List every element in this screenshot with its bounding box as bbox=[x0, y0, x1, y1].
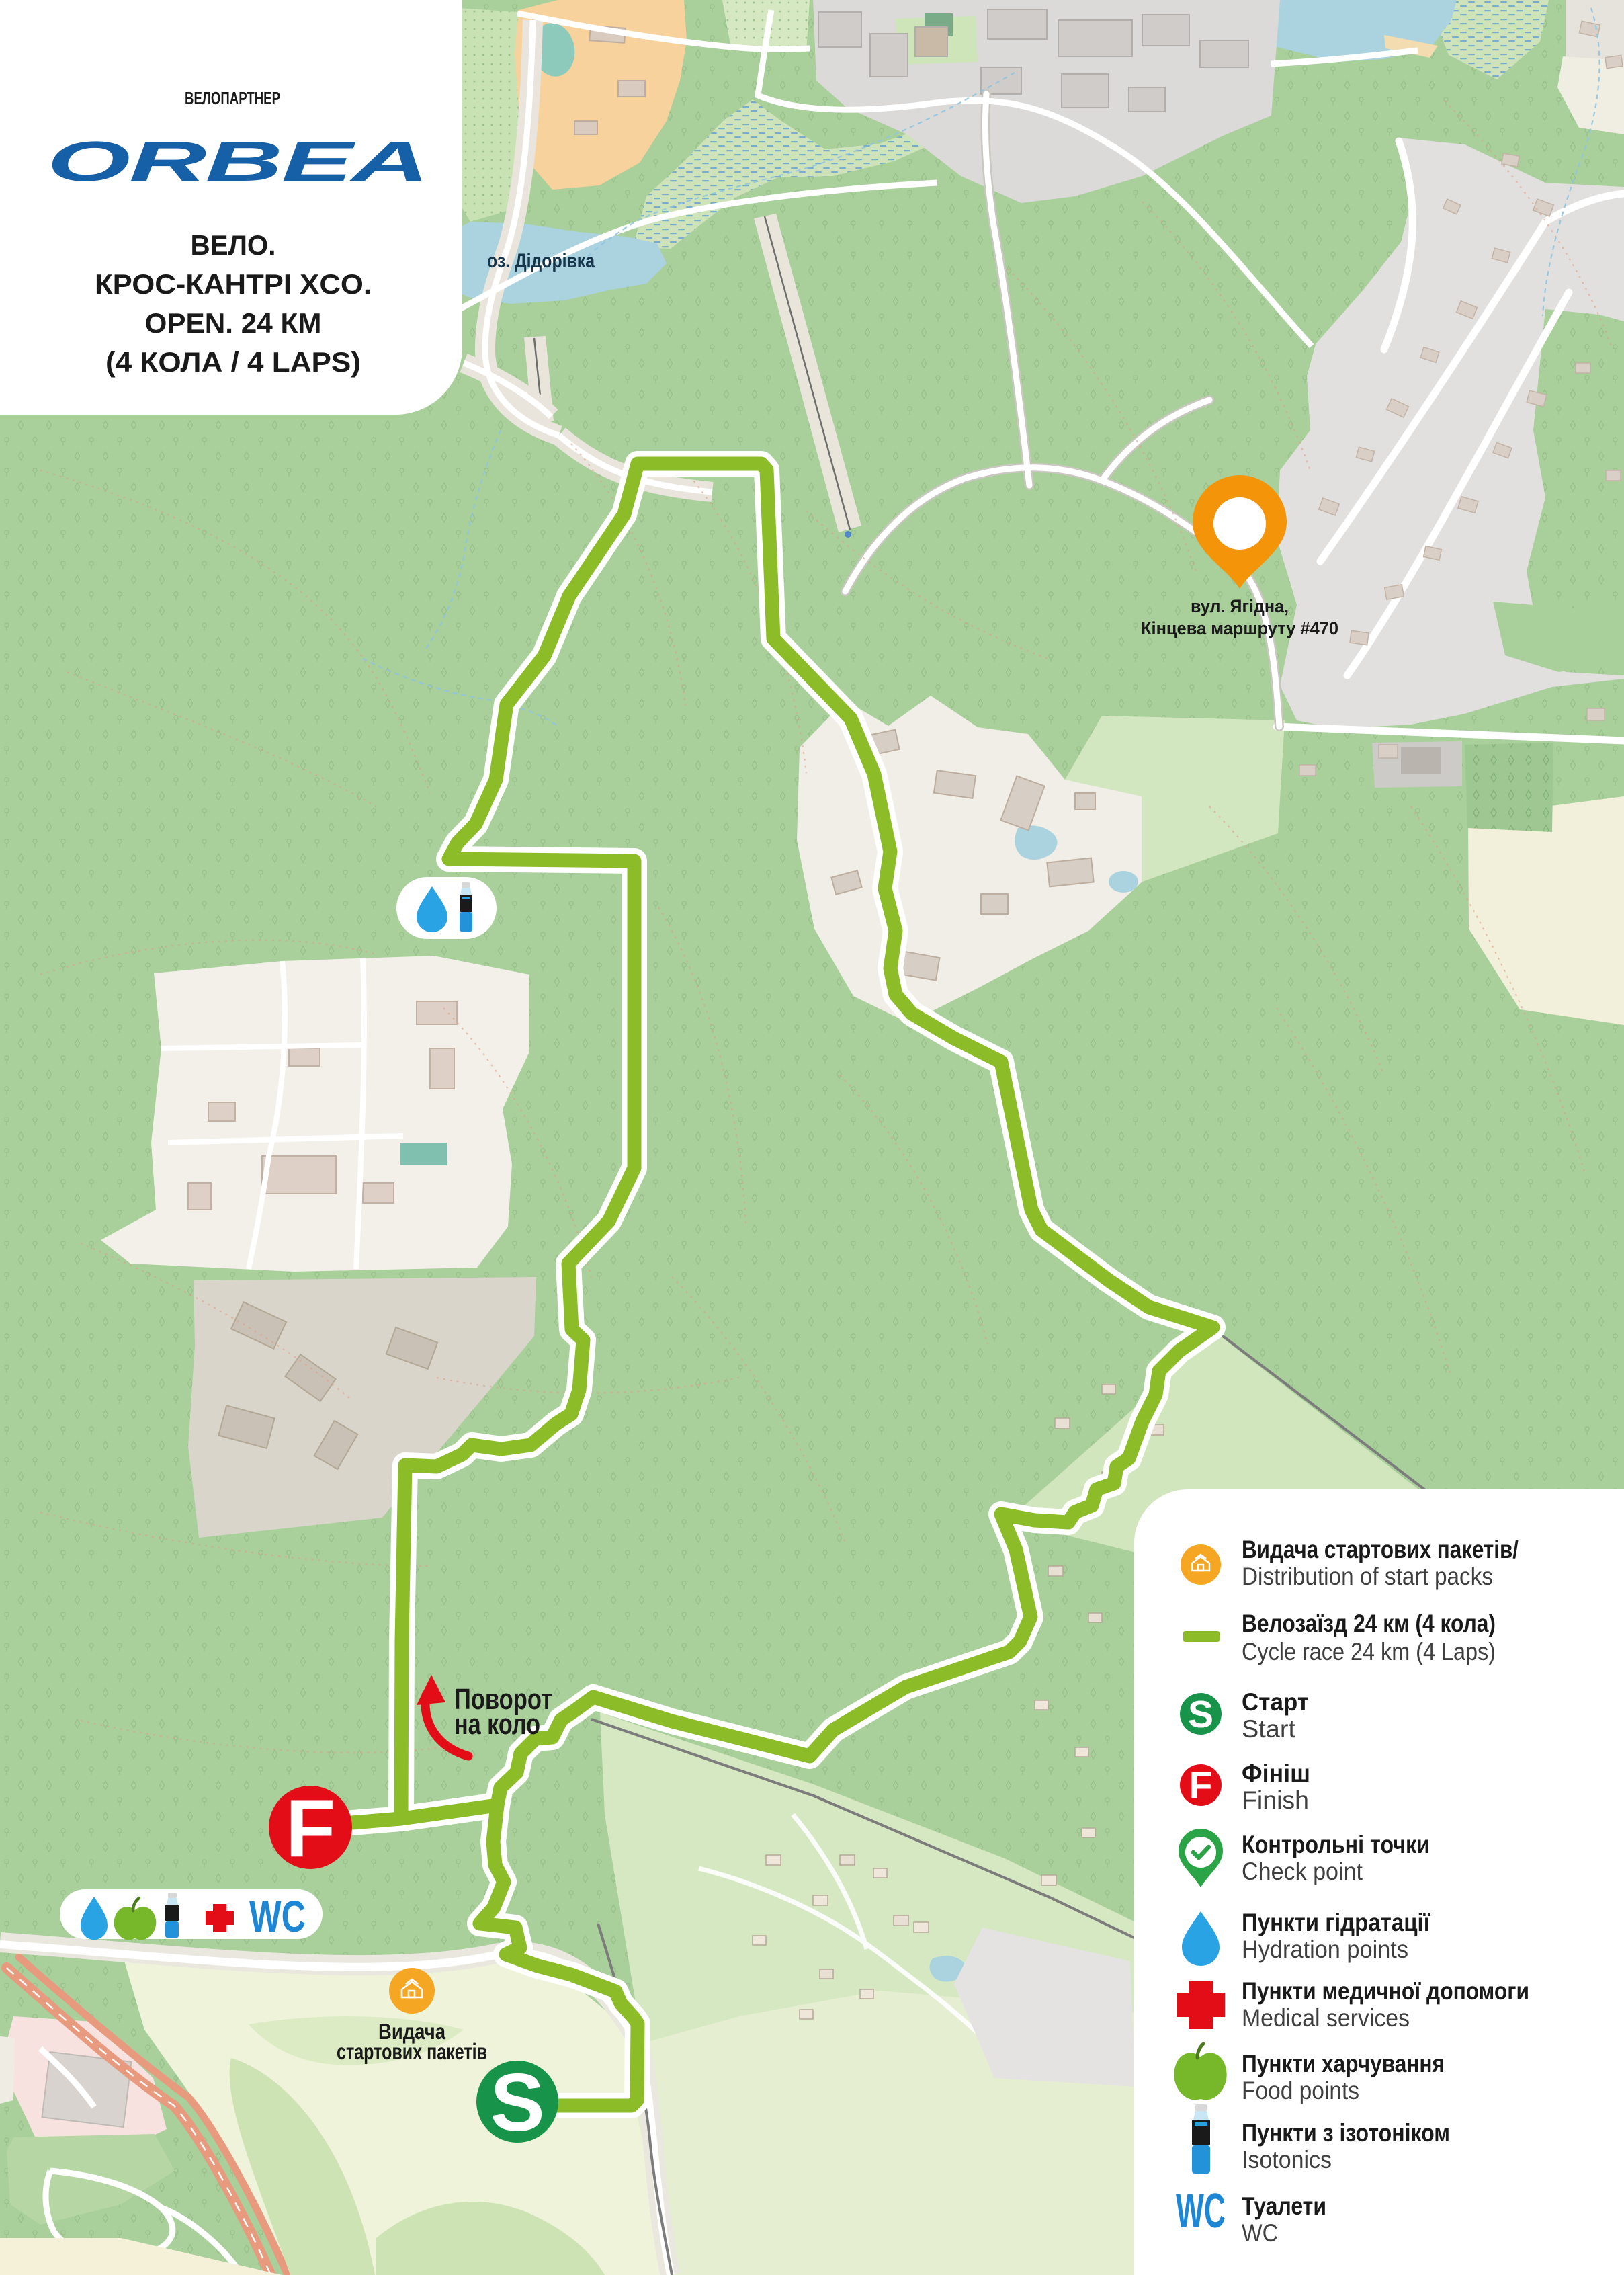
svg-text:Видача стартових пакетів/: Видача стартових пакетів/ bbox=[1242, 1536, 1519, 1563]
svg-text:оз. Дідорівка: оз. Дідорівка bbox=[487, 250, 595, 272]
svg-text:Кінцева маршруту #470: Кінцева маршруту #470 bbox=[1141, 618, 1338, 638]
svg-text:Hydration points: Hydration points bbox=[1242, 1936, 1408, 1963]
svg-text:S: S bbox=[1188, 1693, 1213, 1736]
svg-text:F: F bbox=[286, 1782, 336, 1874]
svg-text:Finish: Finish bbox=[1242, 1786, 1309, 1814]
svg-text:F: F bbox=[1189, 1764, 1213, 1807]
svg-text:Medical services: Medical services bbox=[1242, 2004, 1410, 2032]
svg-text:Пункти харчування: Пункти харчування bbox=[1242, 2050, 1445, 2077]
svg-text:(4 КОЛА / 4 LAPS): (4 КОЛА / 4 LAPS) bbox=[105, 346, 361, 378]
svg-text:Food points: Food points bbox=[1242, 2077, 1359, 2104]
svg-text:S: S bbox=[490, 2057, 544, 2148]
svg-text:Пункти з ізотоніком: Пункти з ізотоніком bbox=[1242, 2119, 1450, 2147]
svg-text:Check point: Check point bbox=[1242, 1858, 1363, 1885]
svg-text:Пункти медичної допомоги: Пункти медичної допомоги bbox=[1242, 1977, 1529, 2005]
svg-text:стартових пакетів: стартових пакетів bbox=[337, 2039, 487, 2064]
svg-text:WC: WC bbox=[1242, 2219, 1278, 2247]
svg-text:ORBEA: ORBEA bbox=[47, 130, 428, 194]
svg-text:Isotonics: Isotonics bbox=[1242, 2146, 1332, 2174]
svg-text:ВЕЛОПАРТНЕР: ВЕЛОПАРТНЕР bbox=[185, 88, 280, 108]
svg-text:на коло: на коло bbox=[454, 1708, 540, 1741]
svg-text:Старт: Старт bbox=[1242, 1688, 1309, 1716]
svg-text:КРОС-КАНТРІ XCO.: КРОС-КАНТРІ XCO. bbox=[95, 268, 372, 300]
svg-text:Контрольні точки: Контрольні точки bbox=[1242, 1831, 1430, 1858]
svg-text:Пункти гідратації: Пункти гідратації bbox=[1242, 1909, 1430, 1936]
svg-text:WC: WC bbox=[249, 1891, 306, 1941]
svg-text:OPEN. 24 КМ: OPEN. 24 КМ bbox=[145, 307, 322, 339]
svg-text:вул. Ягідна,: вул. Ягідна, bbox=[1191, 596, 1289, 616]
svg-text:Cycle race 24 km (4 Laps): Cycle race 24 km (4 Laps) bbox=[1242, 1638, 1496, 1665]
svg-text:ВЕЛО.: ВЕЛО. bbox=[191, 229, 276, 261]
svg-text:Distribution of start packs: Distribution of start packs bbox=[1242, 1563, 1493, 1590]
svg-text:Start: Start bbox=[1242, 1715, 1296, 1743]
svg-text:Туалети: Туалети bbox=[1242, 2192, 1326, 2220]
svg-text:Велозаїзд 24 км (4 кола): Велозаїзд 24 км (4 кола) bbox=[1242, 1610, 1496, 1637]
svg-text:Фініш: Фініш bbox=[1242, 1760, 1310, 1787]
svg-text:WC: WC bbox=[1176, 2184, 1226, 2238]
